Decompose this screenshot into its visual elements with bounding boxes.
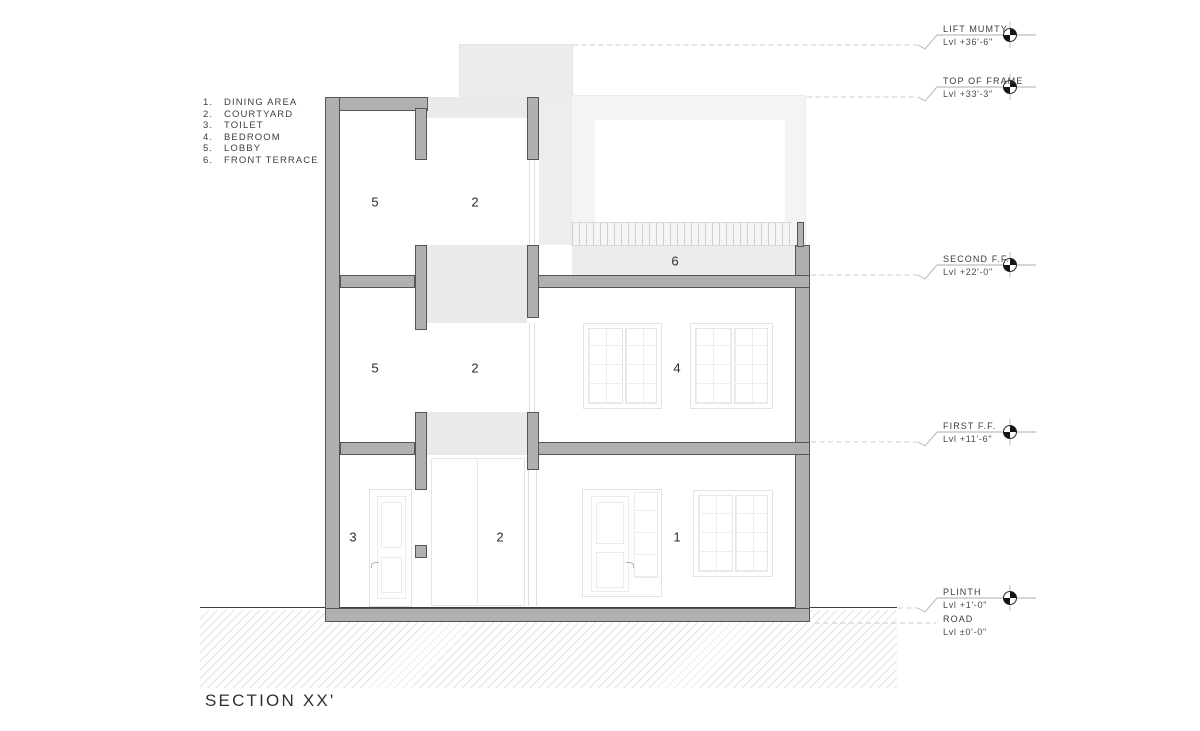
second-floor-slab-right <box>538 275 810 288</box>
level-name: PLINTH <box>943 587 982 597</box>
courtyard-glazed-divider <box>477 460 478 604</box>
legend-item-number: 3. <box>203 120 224 131</box>
legend-item: 4.BEDROOM <box>203 132 319 144</box>
courtyard-wall-left-seg3 <box>415 412 427 490</box>
courtyard-opening-line <box>534 160 535 245</box>
courtyard-opening-line <box>528 470 529 606</box>
dining-door-panel-upper <box>596 502 624 544</box>
room-label-courtyard-mid: 2 <box>471 361 478 376</box>
right-exterior-wall <box>795 245 810 622</box>
courtyard-roof-beam <box>427 97 527 118</box>
room-label-toilet: 3 <box>349 530 356 545</box>
section-drawing-canvas: 1.DINING AREA 2.COURTYARD 3.TOILET 4.BED… <box>0 0 1200 731</box>
room-label-courtyard-ground: 2 <box>496 530 503 545</box>
first-floor-slab-left <box>340 442 415 455</box>
legend-item-label: COURTYARD <box>224 109 293 120</box>
legend-item: 5.LOBBY <box>203 143 319 155</box>
lift-mumty-block <box>460 45 572 98</box>
legend-item: 2.COURTYARD <box>203 109 319 121</box>
bedroom-window-2-sash-left <box>695 328 732 404</box>
courtyard-opening-line <box>536 470 537 606</box>
dining-window-sash-left <box>698 495 733 572</box>
terrace-railing <box>572 222 792 246</box>
toilet-door-handle <box>371 562 379 568</box>
level-name: FIRST F.F. <box>943 421 996 431</box>
legend-item: 1.DINING AREA <box>203 97 319 109</box>
courtyard-wall-left-seg4 <box>415 545 427 558</box>
dining-door-panel-lower <box>596 552 624 588</box>
level-value: Lvl +36'-6" <box>943 37 993 47</box>
level-value: Lvl +33'-3" <box>943 89 993 99</box>
courtyard-opening-line <box>529 323 530 412</box>
legend-item-label: FRONT TERRACE <box>224 155 319 166</box>
courtyard-wall-right-seg3 <box>527 412 539 470</box>
plinth-base-slab <box>325 608 810 622</box>
courtyard-glazed-doors <box>431 458 525 606</box>
legend-item-number: 2. <box>203 109 224 120</box>
level-value: Lvl +1'-0" <box>943 600 987 610</box>
dining-door-handle <box>626 562 634 568</box>
courtyard-wall-left-seg1 <box>415 108 427 160</box>
room-label-lobby-lower: 5 <box>371 361 378 376</box>
legend-item-number: 6. <box>203 155 224 166</box>
terrace-floor-band <box>572 245 795 275</box>
dining-door-sidelite <box>634 492 658 578</box>
leader-first-ff <box>811 419 1036 446</box>
courtyard-wall-right-seg1 <box>527 97 539 160</box>
legend-item: 3.TOILET <box>203 120 319 132</box>
room-label-lobby-upper: 5 <box>371 195 378 210</box>
level-value: Lvl ±0'-0" <box>943 627 987 637</box>
dining-window-sash-right <box>735 495 768 572</box>
level-value: Lvl +22'-0" <box>943 267 993 277</box>
courtyard-opening-line <box>529 160 530 245</box>
room-label-front-terrace: 6 <box>671 254 678 269</box>
legend-item-label: BEDROOM <box>224 132 281 143</box>
terrace-frame-opening <box>595 120 785 222</box>
toilet-door-panel-lower <box>381 557 402 593</box>
level-value: Lvl +11'-6" <box>943 434 992 444</box>
room-label-dining: 1 <box>673 530 680 545</box>
courtyard-spandrel-second <box>427 245 527 323</box>
courtyard-spandrel-first <box>427 412 527 455</box>
lift-shaft <box>539 97 572 245</box>
left-exterior-wall <box>325 97 340 622</box>
level-name: TOP OF FRAME <box>943 76 1023 86</box>
bedroom-window-1-sash-right <box>625 328 657 404</box>
legend-item-number: 5. <box>203 143 224 154</box>
legend-item-number: 4. <box>203 132 224 143</box>
courtyard-wall-left-seg2 <box>415 245 427 330</box>
legend-item: 6.FRONT TERRACE <box>203 155 319 167</box>
toilet-door-panel-upper <box>381 502 402 548</box>
terrace-railing-post <box>797 222 804 247</box>
room-label-bedroom: 4 <box>673 361 680 376</box>
level-name: LIFT MUMTY <box>943 24 1008 34</box>
bedroom-window-2-sash-right <box>734 328 768 404</box>
first-floor-slab-right <box>538 442 810 455</box>
legend-item-number: 1. <box>203 97 224 108</box>
legend-item-label: LOBBY <box>224 143 261 154</box>
legend-item-label: TOILET <box>224 120 264 131</box>
level-name: ROAD <box>943 614 973 624</box>
courtyard-opening-line <box>534 323 535 412</box>
level-name: SECOND F.F. <box>943 254 1010 264</box>
bedroom-window-1-sash-left <box>588 328 623 404</box>
legend-item-label: DINING AREA <box>224 97 297 108</box>
roof-slab-left-block <box>325 97 428 111</box>
second-floor-slab-left <box>340 275 415 288</box>
room-label-courtyard-upper: 2 <box>471 195 478 210</box>
room-legend: 1.DINING AREA 2.COURTYARD 3.TOILET 4.BED… <box>203 97 319 167</box>
drawing-title: SECTION XX' <box>205 691 335 711</box>
